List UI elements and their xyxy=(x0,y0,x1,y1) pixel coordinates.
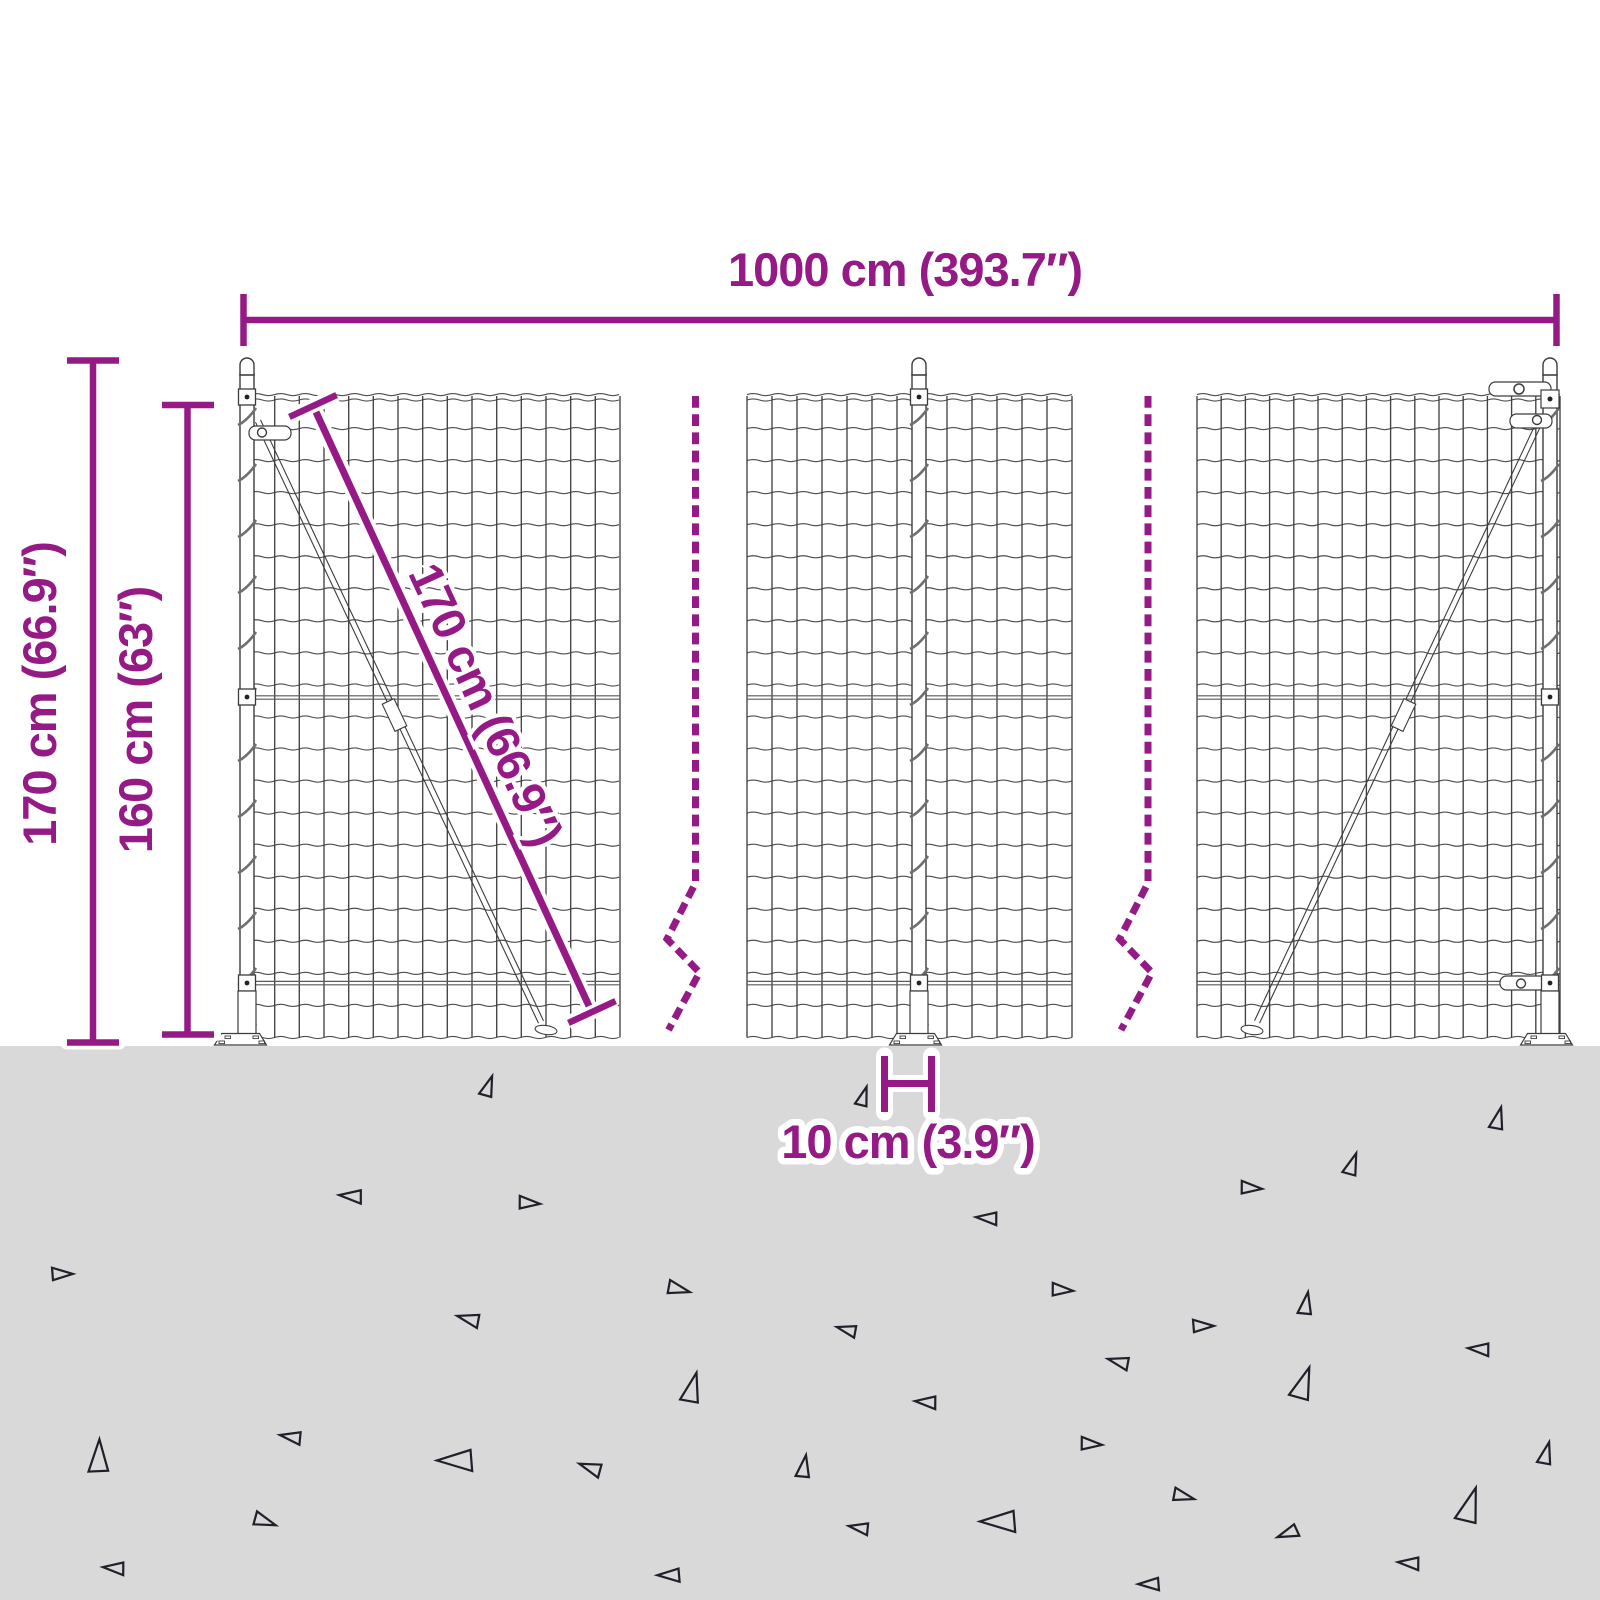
svg-text:1000 cm (393.7″): 1000 cm (393.7″) xyxy=(728,243,1082,296)
svg-text:10 cm (3.9″): 10 cm (3.9″) xyxy=(781,1115,1034,1168)
svg-text:160 cm (63″): 160 cm (63″) xyxy=(109,587,162,854)
svg-text:170 cm (66.9″): 170 cm (66.9″) xyxy=(13,542,66,846)
